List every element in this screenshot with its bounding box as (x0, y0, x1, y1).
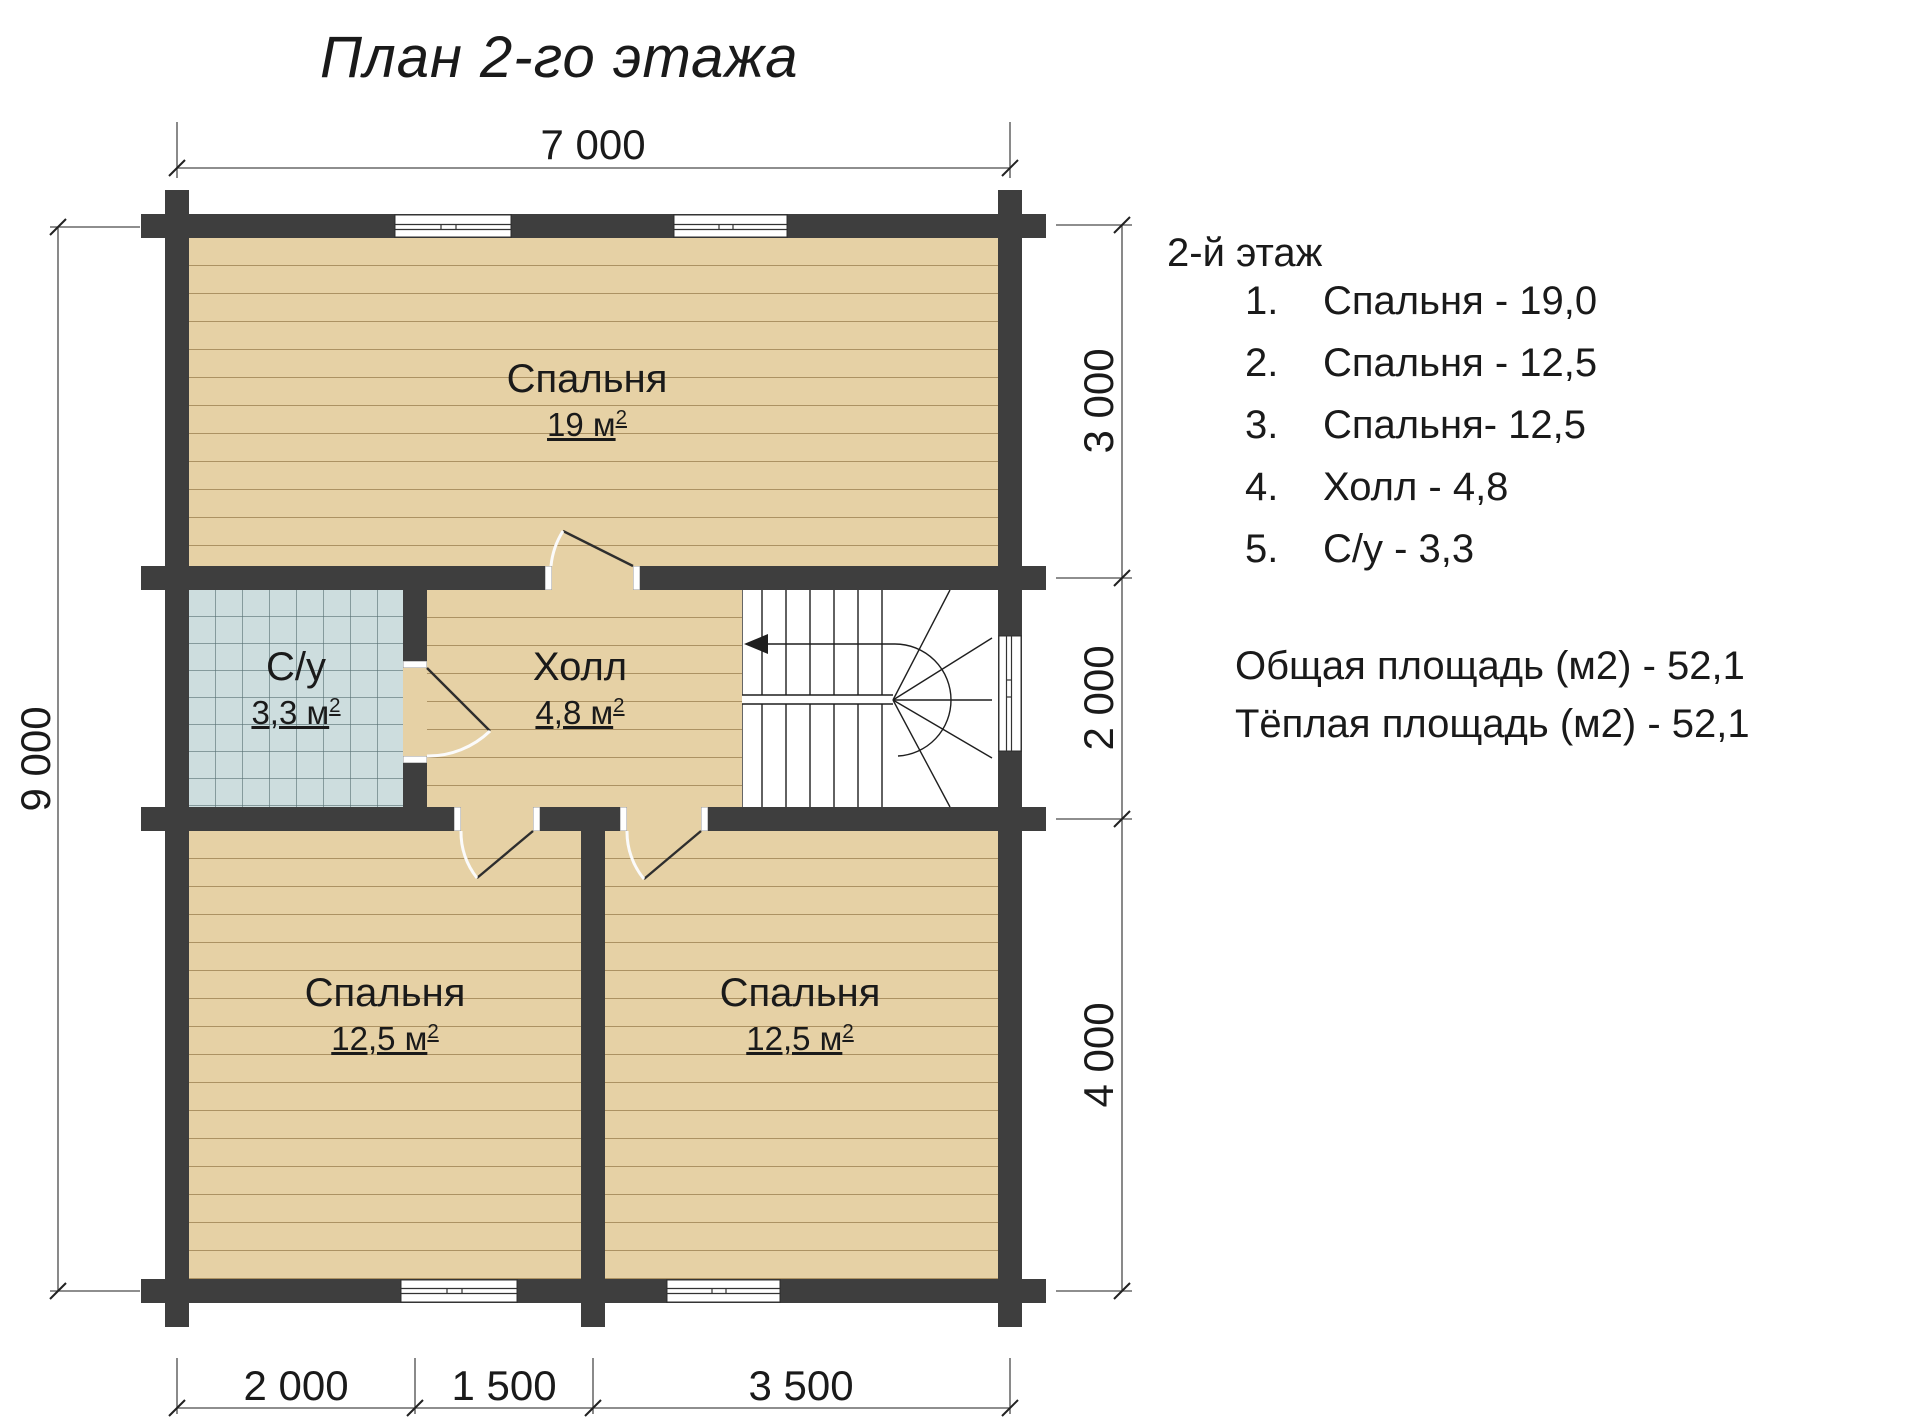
legend-item-number: 3. (1245, 403, 1323, 448)
dim-left: 9 000 (12, 706, 60, 811)
legend-item-3: 3. Спальня- 12,5 (1245, 403, 1586, 448)
room-name: Спальня (720, 972, 881, 1014)
wall-top (165, 214, 1022, 238)
page-title: План 2-го этажа (320, 24, 799, 91)
label-bedroom-top: Спальня 19 м2 (507, 358, 668, 443)
window-bottom-1 (400, 1279, 518, 1308)
log-end (1022, 807, 1046, 831)
legend-item-number: 1. (1245, 279, 1323, 324)
dim-bottom-1: 2 000 (243, 1362, 348, 1410)
stairwell (742, 590, 999, 807)
legend-item-4: 4. Холл - 4,8 (1245, 465, 1508, 510)
log-end (998, 1303, 1022, 1327)
log-end (1022, 566, 1046, 590)
legend-item-label: Спальня - 12,5 (1323, 341, 1597, 386)
room-area: 19 м2 (507, 400, 668, 443)
wall-left (165, 214, 189, 1303)
log-end (141, 1279, 165, 1303)
wall-bathroom-partition-lower (403, 756, 427, 807)
wall-bathroom-partition-upper (403, 590, 427, 668)
dim-right-1: 3 000 (1075, 348, 1123, 453)
legend-item-label: С/у - 3,3 (1323, 527, 1474, 572)
wall-right (998, 214, 1022, 1303)
doorway-bedroom-bottom-left (461, 807, 533, 831)
legend-heading: 2-й этаж (1167, 231, 1322, 276)
door-jamb (454, 807, 461, 831)
floor-plan-page: План 2-го этажа (0, 0, 1925, 1424)
room-name: С/у (251, 646, 340, 688)
log-end (998, 190, 1022, 214)
log-end (141, 807, 165, 831)
legend-item-label: Холл - 4,8 (1323, 465, 1508, 510)
door-jamb (545, 566, 552, 590)
room-name: Холл (533, 646, 627, 688)
dim-bottom-2: 1 500 (451, 1362, 556, 1410)
log-end (1022, 1279, 1046, 1303)
door-jamb (403, 756, 427, 763)
legend-warm-area: Тёплая площадь (м2) - 52,1 (1235, 702, 1750, 747)
dim-right-2: 2 000 (1075, 645, 1123, 750)
dim-top: 7 000 (540, 121, 645, 169)
log-end (1022, 214, 1046, 238)
room-area: 12,5 м2 (720, 1014, 881, 1057)
wall-mid1-right-segment (633, 566, 1022, 590)
wall-bedroom-partition (581, 831, 605, 1279)
legend-item-number: 2. (1245, 341, 1323, 386)
room-area: 12,5 м2 (305, 1014, 466, 1057)
wall-mid2-segment-a (165, 807, 461, 831)
room-name: Спальня (305, 972, 466, 1014)
legend-item-label: Спальня - 19,0 (1323, 279, 1597, 324)
room-area: 4,8 м2 (533, 688, 627, 731)
door-jamb (620, 807, 627, 831)
window-top-1 (394, 214, 512, 243)
wall-mid1-left-segment (165, 566, 551, 590)
dim-bottom-3: 3 500 (748, 1362, 853, 1410)
legend-item-number: 5. (1245, 527, 1323, 572)
label-bathroom: С/у 3,3 м2 (251, 646, 340, 731)
log-end (141, 566, 165, 590)
label-bedroom-bottom-right: Спальня 12,5 м2 (720, 972, 881, 1057)
door-jamb (701, 807, 708, 831)
legend-total-area: Общая площадь (м2) - 52,1 (1235, 644, 1745, 689)
window-bottom-2 (666, 1279, 781, 1308)
log-end (165, 1303, 189, 1327)
doorway-bathroom (403, 668, 427, 756)
wall-bottom (165, 1279, 1022, 1303)
label-hall: Холл 4,8 м2 (533, 646, 627, 731)
room-name: Спальня (507, 358, 668, 400)
log-end (581, 1303, 605, 1327)
door-jamb (403, 661, 427, 668)
doorway-bedroom-top (551, 566, 633, 590)
log-end (141, 214, 165, 238)
legend-item-2: 2. Спальня - 12,5 (1245, 341, 1597, 386)
legend-item-number: 4. (1245, 465, 1323, 510)
doorway-bedroom-bottom-right (627, 807, 701, 831)
wall-mid2-segment-c (701, 807, 1022, 831)
window-right (998, 635, 1022, 757)
legend-item-1: 1. Спальня - 19,0 (1245, 279, 1597, 324)
room-area: 3,3 м2 (251, 688, 340, 731)
legend-item-5: 5. С/у - 3,3 (1245, 527, 1474, 572)
window-top-2 (673, 214, 788, 243)
door-jamb (533, 807, 540, 831)
dim-right-3: 4 000 (1075, 1002, 1123, 1107)
legend-item-label: Спальня- 12,5 (1323, 403, 1586, 448)
door-jamb (633, 566, 640, 590)
log-end (165, 190, 189, 214)
label-bedroom-bottom-left: Спальня 12,5 м2 (305, 972, 466, 1057)
wall-mid2-segment-b (533, 807, 627, 831)
